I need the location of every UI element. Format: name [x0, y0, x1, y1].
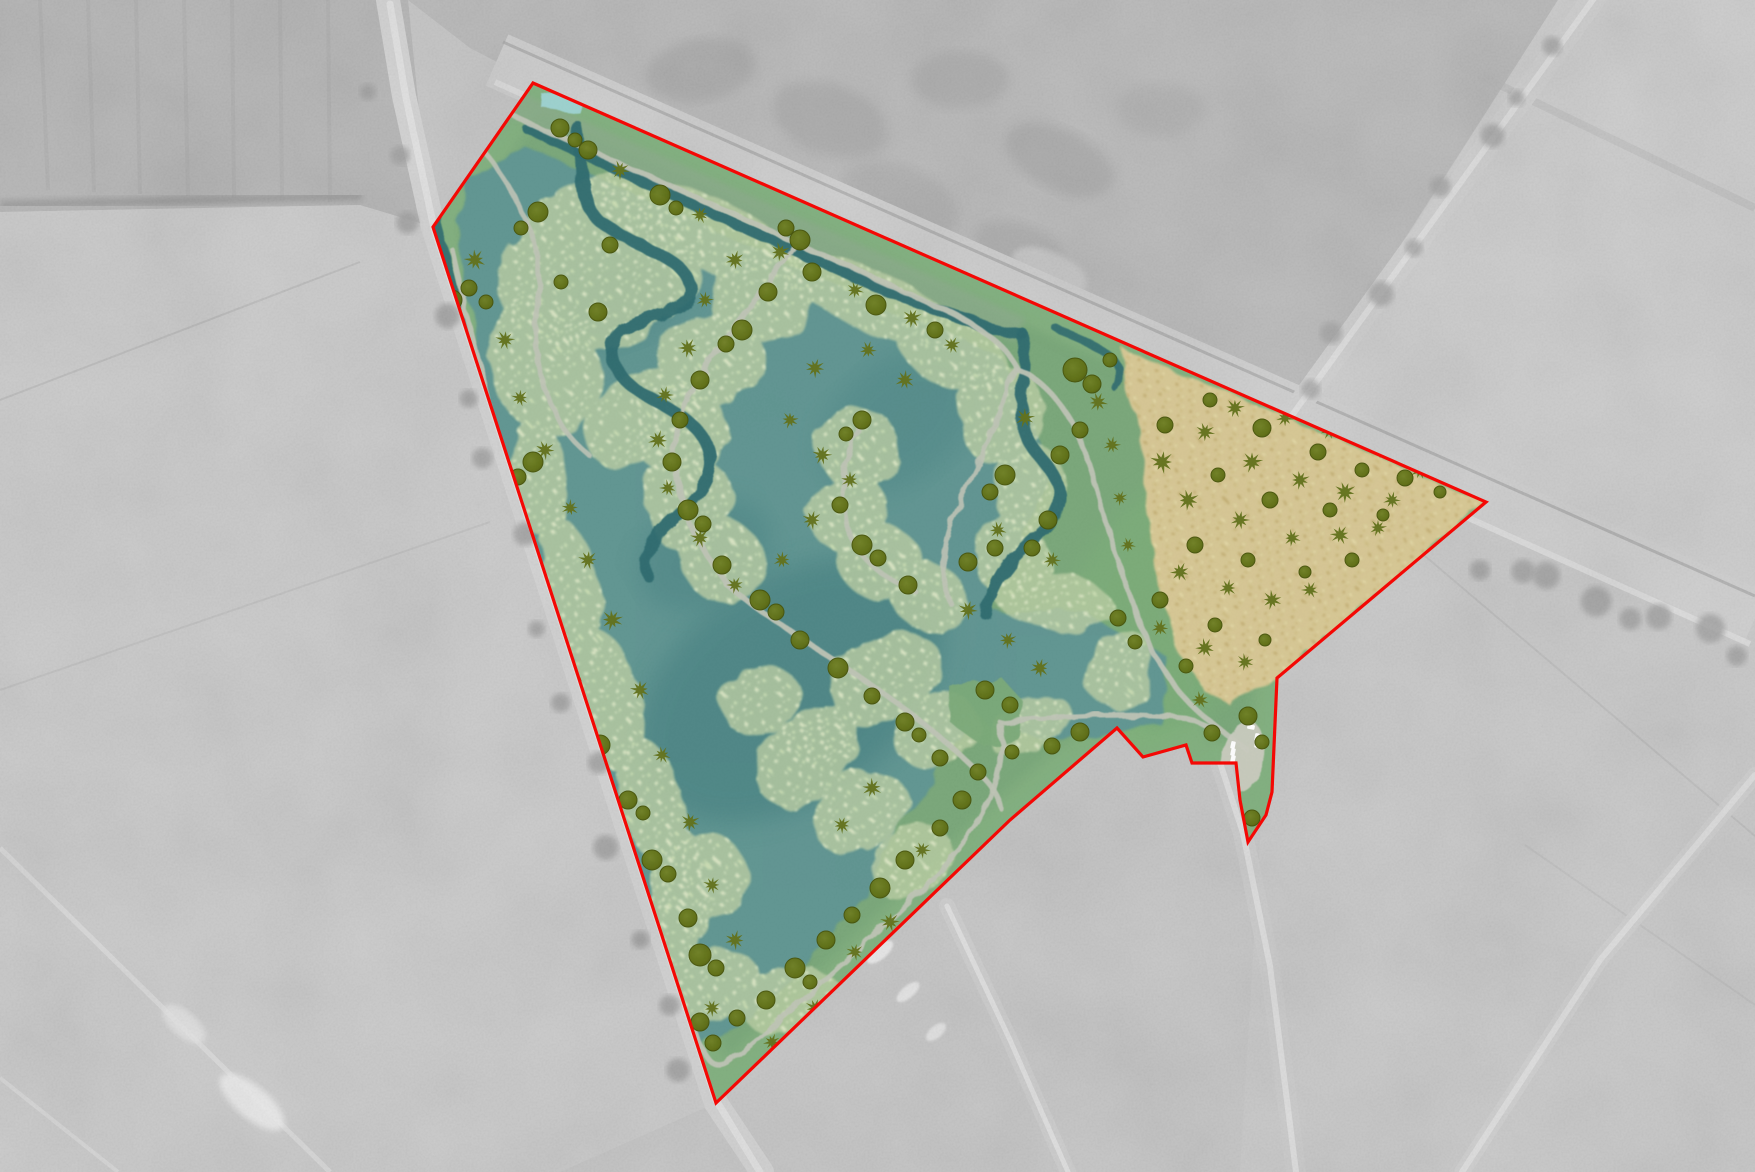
masterplan-map [0, 0, 1755, 1172]
aerial-masterplan-scene [0, 0, 1755, 1172]
global-grain [0, 0, 1755, 1172]
grain-layer [0, 0, 1755, 1172]
